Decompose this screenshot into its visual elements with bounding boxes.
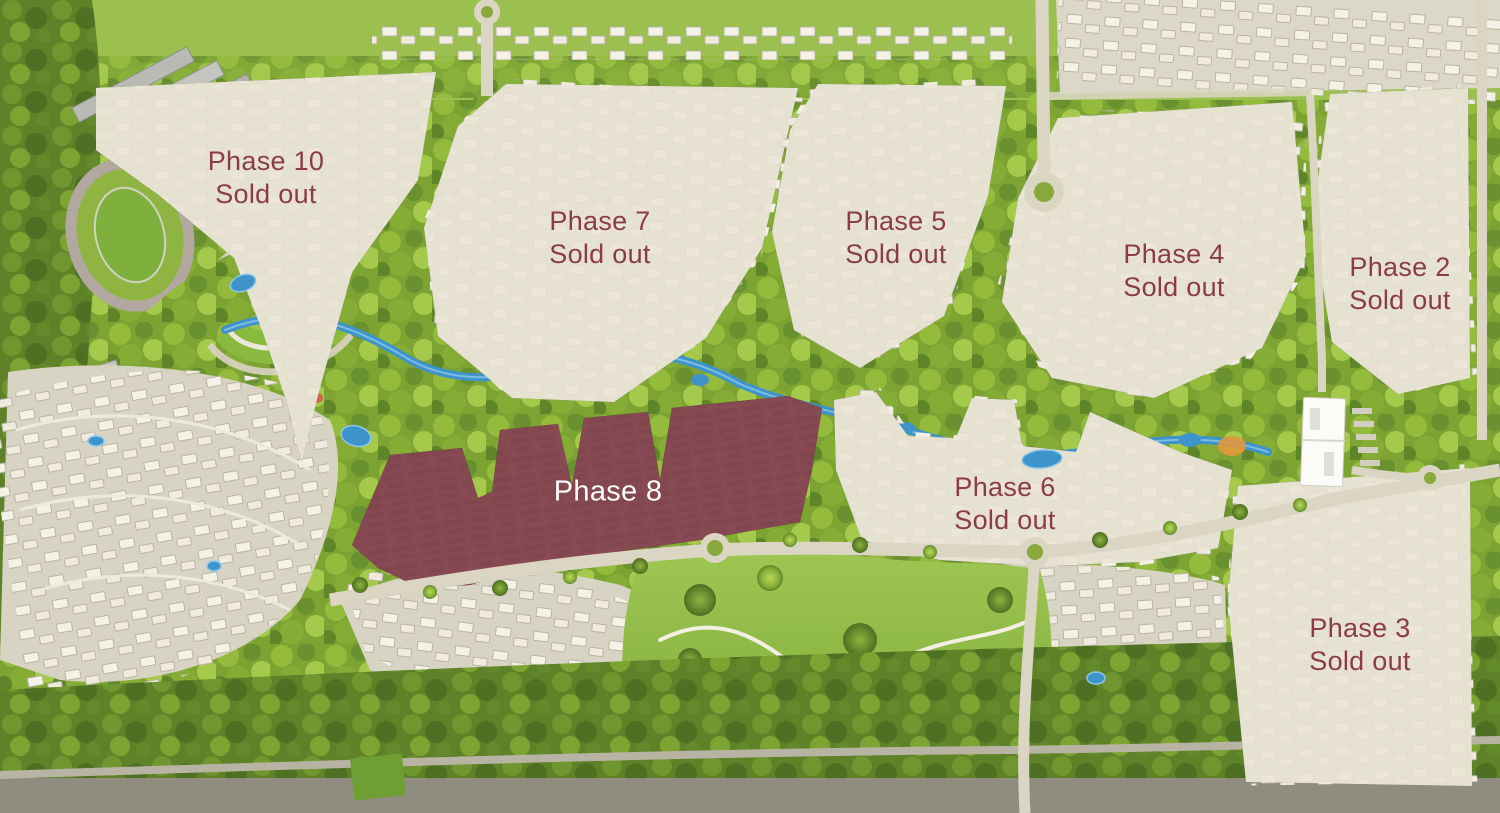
phase-name: Phase 4 [1123,238,1224,271]
phase-2-label[interactable]: Phase 2 Sold out [1349,251,1450,317]
phase-3-label[interactable]: Phase 3 Sold out [1309,612,1410,678]
phase-status: Sold out [549,238,650,271]
phase-name: Phase 2 [1349,251,1450,284]
phase-status: Sold out [1123,271,1224,304]
masterplan-render [0,0,1500,813]
phase-name: Phase 8 [554,474,663,509]
phase-5-label[interactable]: Phase 5 Sold out [845,205,946,271]
sports-pitch [350,753,406,800]
phase-status: Sold out [1309,645,1410,678]
masterplan-map: Phase 10 Sold out Phase 7 Sold out Phase… [0,0,1500,813]
phase-status: Sold out [1349,284,1450,317]
phase-name: Phase 3 [1309,612,1410,645]
phase-name: Phase 6 [954,471,1055,504]
phase-name: Phase 10 [208,145,325,178]
phase-name: Phase 7 [549,205,650,238]
phase-7-label[interactable]: Phase 7 Sold out [549,205,650,271]
phase-10-label[interactable]: Phase 10 Sold out [208,145,325,211]
phase-6-label[interactable]: Phase 6 Sold out [954,471,1055,537]
phase-status: Sold out [208,178,325,211]
play-area [1218,436,1246,456]
phase-name: Phase 5 [845,205,946,238]
phase-status: Sold out [954,504,1055,537]
phase-status: Sold out [845,238,946,271]
phase-8-label[interactable]: Phase 8 [554,474,663,509]
phase-4-label[interactable]: Phase 4 Sold out [1123,238,1224,304]
